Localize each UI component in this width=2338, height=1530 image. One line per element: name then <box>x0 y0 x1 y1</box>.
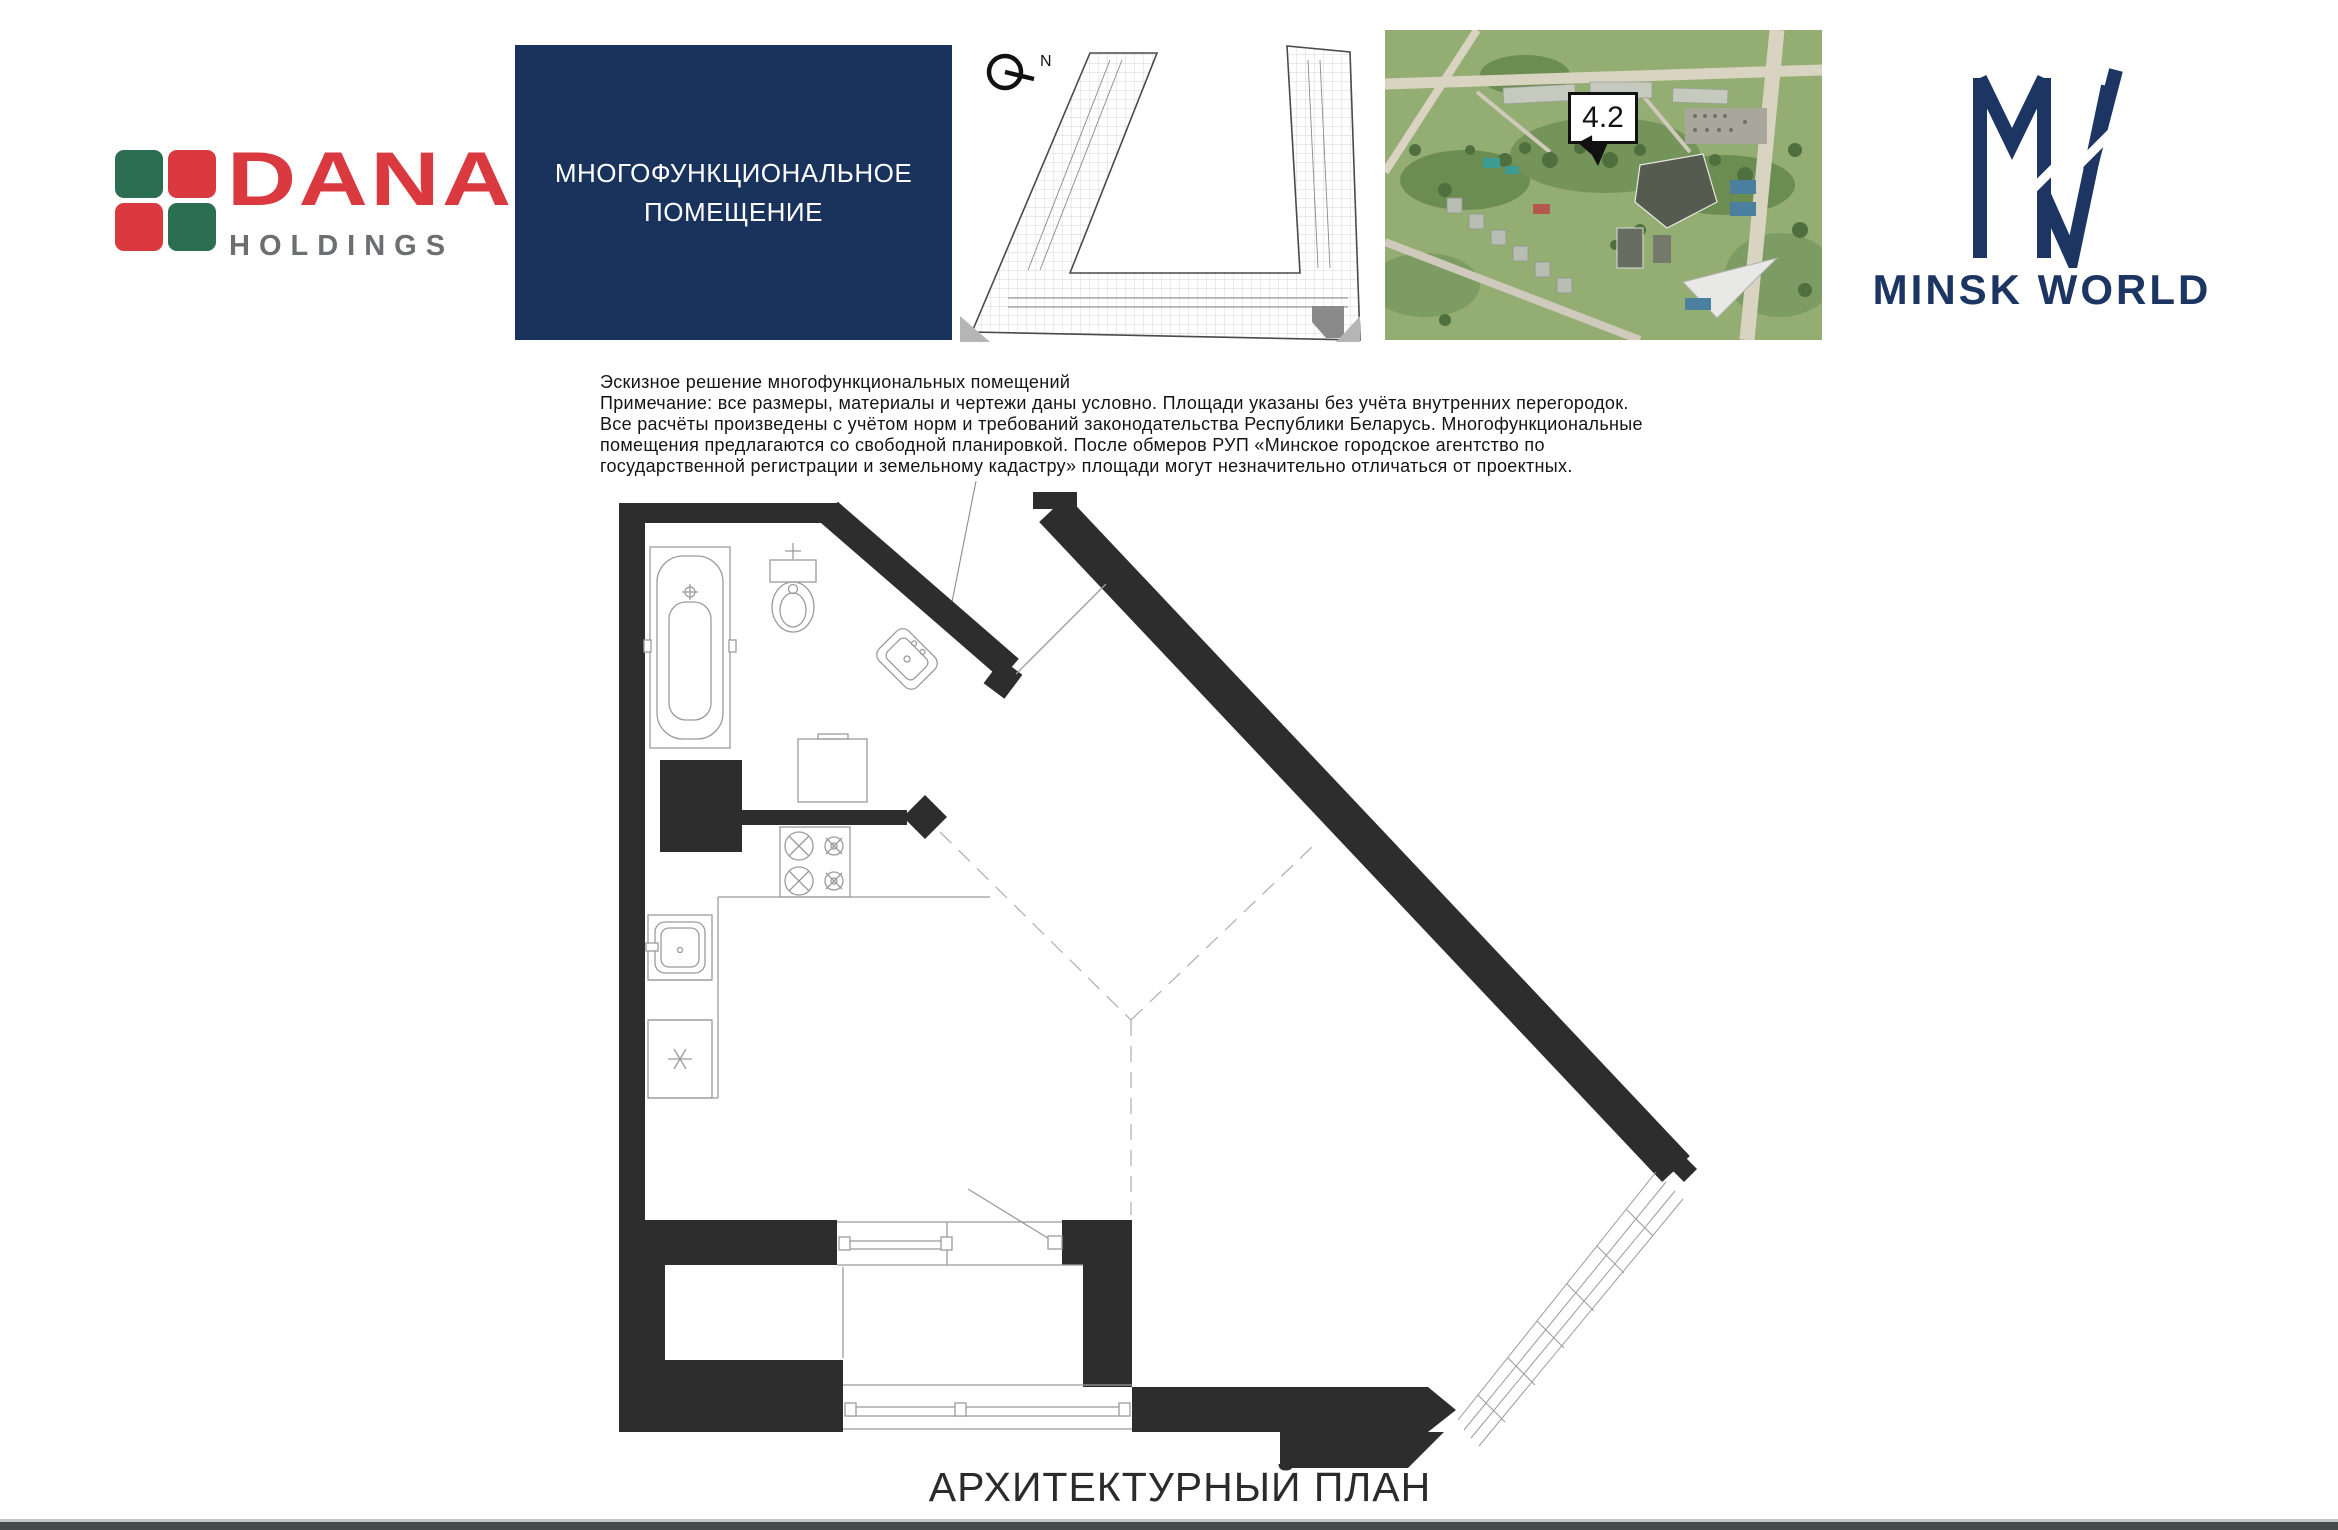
plan-caption: АРХИТЕКТУРНЫЙ ПЛАН <box>860 1464 1500 1511</box>
brochure-page: DANA HOLDINGS МНОГОФУНКЦИОНАЛЬНОЕ ПОМЕЩЕ… <box>0 0 2338 1530</box>
loggia-glazing-bay <box>1458 1172 1683 1446</box>
appliance-symbol <box>668 1049 692 1069</box>
toilet <box>770 543 816 632</box>
free-plan-dashed-lines <box>940 832 1312 1215</box>
north-arrow-icon: N <box>989 53 1052 88</box>
balcony-window <box>837 1222 1083 1265</box>
kitchen-sink <box>646 915 712 980</box>
walls <box>619 492 1697 1468</box>
bathroom-sink <box>873 625 941 693</box>
counter-lines <box>648 897 990 1098</box>
site-key-plan: N <box>960 46 1360 342</box>
leader-line <box>950 481 976 612</box>
floor-plan-drawing <box>619 481 1697 1468</box>
bathtub <box>644 547 736 748</box>
shaft <box>660 760 742 852</box>
stove <box>780 827 850 897</box>
footer-bar <box>0 1522 2338 1530</box>
balcony-door <box>968 1189 1062 1249</box>
entrance-door-leaf <box>1016 584 1106 674</box>
drawings-layer: N <box>0 0 2338 1530</box>
appliance-box <box>648 1020 712 1098</box>
north-label: N <box>1040 53 1052 70</box>
water-heater <box>798 734 867 802</box>
